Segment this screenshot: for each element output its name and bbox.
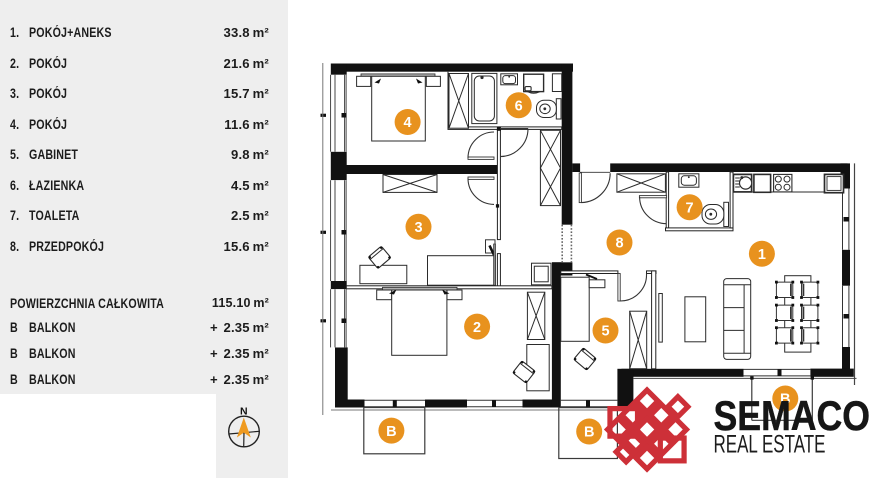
svg-text:B: B <box>386 424 396 440</box>
svg-text:REAL ESTATE: REAL ESTATE <box>714 432 826 459</box>
svg-text:4: 4 <box>404 115 412 131</box>
svg-text:2: 2 <box>473 320 481 336</box>
svg-text:1: 1 <box>758 247 766 263</box>
svg-text:B: B <box>584 425 594 441</box>
svg-text:6: 6 <box>515 98 523 114</box>
svg-text:5: 5 <box>601 324 609 340</box>
svg-text:7: 7 <box>686 200 694 216</box>
svg-text:N: N <box>240 406 248 418</box>
svg-text:8: 8 <box>615 236 623 252</box>
svg-text:3: 3 <box>414 220 422 236</box>
